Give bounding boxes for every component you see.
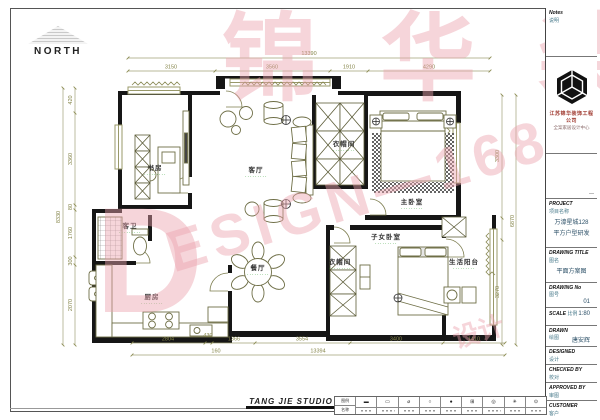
project-value-line1: 万濠星城128 [549,217,594,226]
studio-name: TANG JIE STUDIO [248,397,334,406]
room-label-cloak1: 衣帽间 [333,139,356,148]
legend-cell: ✳ [504,397,525,414]
legend-cell: ⊙ [525,397,546,414]
legend-cell: ⊞ [461,397,482,414]
room-label-living: 客厅 [248,165,264,174]
legend-header-cell: 图例 名称 [335,397,355,414]
drawn-section: DRAWN 绘图 唐安辉 [546,326,597,347]
legend-symbol: ▭ [377,397,397,408]
dim-left-0: 420 [68,95,74,104]
dim-left-5: 2070 [68,299,74,311]
dim-right-1: 3270 [495,286,501,298]
room-label-kids: 子女卧室 [371,232,401,241]
dim-left-2: 80 [68,204,74,210]
legend-cell: ○ [419,397,440,414]
dim-top-0: 3150 [165,65,177,71]
scale-label-en: SCALE [549,311,566,317]
drawing-title-label-cn: 图名 [549,257,594,264]
drawn-label-cn: 绘图 [549,335,559,341]
legend-symbol: ✳ [505,397,525,408]
dim-right-total: 6870 [510,215,516,227]
drawing-title-section: DRAWING TITLE 图名 平面方案图 [546,248,597,283]
legend-cell: ⌀ [398,397,419,414]
svg-text:･････････: ･････････ [144,172,167,177]
drawing-no-label-en: DRAWING No [549,285,594,291]
project-value-line2: 平方户型研发 [549,228,594,237]
legend-cell: ▭ [376,397,397,414]
approved-section: APPROVED BY 审图 [546,383,597,401]
legend-cell: ◎ [482,397,503,414]
scale-label-cn: 比例 [567,311,577,317]
designed-label-cn: 设计 [549,356,594,363]
notes-section: Notes 说明 [546,8,597,57]
studio-underline [246,406,334,409]
frame-left [10,8,11,412]
svg-text:･････････: ･････････ [245,174,268,179]
dim-bottom-4: 3400 [390,337,402,343]
customer-label-en: CUSTOMER [549,403,594,409]
room-label-balcony: 生活阳台 [449,257,479,266]
dim-top-1: 3560 [266,65,278,71]
dim-bottom-1: 430 [203,333,212,339]
dim-left-3: 1760 [68,227,74,239]
dim-bottom-total: 13394 [310,349,325,355]
svg-text:･････････: ･････････ [375,241,398,246]
designed-label-en: DESIGNED [549,349,594,355]
company-cube-logo [556,69,588,105]
drawing-title-label-en: DRAWING TITLE [549,250,594,256]
legend-cell: ▬ [355,397,376,414]
company-subtitle: 全案家居设计中心 [549,125,594,131]
dim-top-total: 13390 [301,51,316,57]
svg-text:･････････: ･････････ [333,148,356,153]
svg-text:･････････: ･････････ [453,266,476,271]
dim-right-0: 3300 [495,150,501,162]
scale-section: SCALE 比例 1:80 [546,308,597,326]
company-name: 江苏锦华装饰工程公司 [549,110,594,124]
project-label-en: PROJECT [549,201,594,207]
scale-value: 1:80 [578,311,594,317]
legend-cell: ● [440,397,461,414]
dim-bottom-3: 3554 [296,337,308,343]
room-label-cloak2: 衣帽间 [329,257,352,266]
company-section: 江苏锦华装饰工程公司 全案家居设计中心 [546,57,597,154]
legend-symbol: ▬ [356,397,376,408]
drawing-sheet: NORTH [0,0,600,420]
room-label-kitchen: 厨房 [145,292,160,301]
dim-bottom-sub: 160 [211,349,220,355]
dim-bottom-0: 2804 [162,337,174,343]
legend-symbol: ⌀ [399,397,419,408]
drawing-title-value: 平面方案图 [549,266,594,275]
svg-text:･････････: ･････････ [401,206,424,211]
checked-label-en: CHECKED BY [549,367,594,373]
legend-symbol: ◎ [483,397,503,408]
room-label-bath: 客卫 [122,221,138,230]
approved-label-en: APPROVED BY [549,385,594,391]
title-block: Notes 说明 江苏锦华装饰工程公司 全案家居设计中心 — PROJECT 项… [545,8,597,412]
checked-label-cn: 校对 [549,374,594,381]
svg-text:･････････: ･････････ [329,266,352,271]
legend-symbol: ○ [420,397,440,408]
drawn-label-en: DRAWN [549,328,594,334]
frame-top [10,8,597,9]
legend-table: 图例 名称 ▬ ▭ ⌀ ○ ● ⊞ ◎ ✳ ⊙ [334,396,547,415]
drawn-value: 唐安辉 [572,335,594,344]
customer-section: CUSTOMER 客户 [546,401,597,420]
approved-label-cn: 审图 [549,392,594,399]
dim-bottom-2: 1366 [228,337,240,343]
dim-top-3: 4290 [423,65,435,71]
svg-text:･････････: ･････････ [141,301,164,306]
spacer-section: — [546,154,597,199]
notes-label-en: Notes [549,10,594,16]
svg-text:･････････: ･････････ [247,272,270,277]
legend-header-top: 图例 [335,397,355,406]
room-label-dining: 餐厅 [250,263,266,272]
project-label-cn: 项目名称 [549,208,594,215]
designed-section: DESIGNED 设计 [546,347,597,365]
dim-bottom-5: 1410 [468,337,480,343]
dim-left-total: 8330 [56,211,62,223]
dim-left-4: 300 [68,256,74,265]
floor-plan: 13390 3150 3560 1910 4290 2804 430 1366 … [40,25,540,390]
legend-symbol: ⊙ [526,397,546,408]
dim-left-1: 3360 [68,153,74,165]
drawing-no-value: 01 [549,299,594,305]
drawing-no-label-cn: 图号 [549,292,559,298]
customer-label-cn: 客户 [549,410,594,417]
notes-label-cn: 说明 [549,17,594,24]
checked-section: CHECKED BY 校对 [546,365,597,383]
legend-header-bottom: 名称 [335,406,355,414]
legend-symbol: ● [441,397,461,408]
drawing-no-section: DRAWING No 图号 01 [546,283,597,308]
project-section: PROJECT 项目名称 万濠星城128 平方户型研发 [546,199,597,248]
legend-symbol: ⊞ [462,397,482,408]
dim-top-2: 1910 [343,65,355,71]
room-label-study: 书房 [148,163,163,172]
svg-text:･････････: ･････････ [119,230,142,235]
room-label-master: 主卧室 [401,197,424,206]
